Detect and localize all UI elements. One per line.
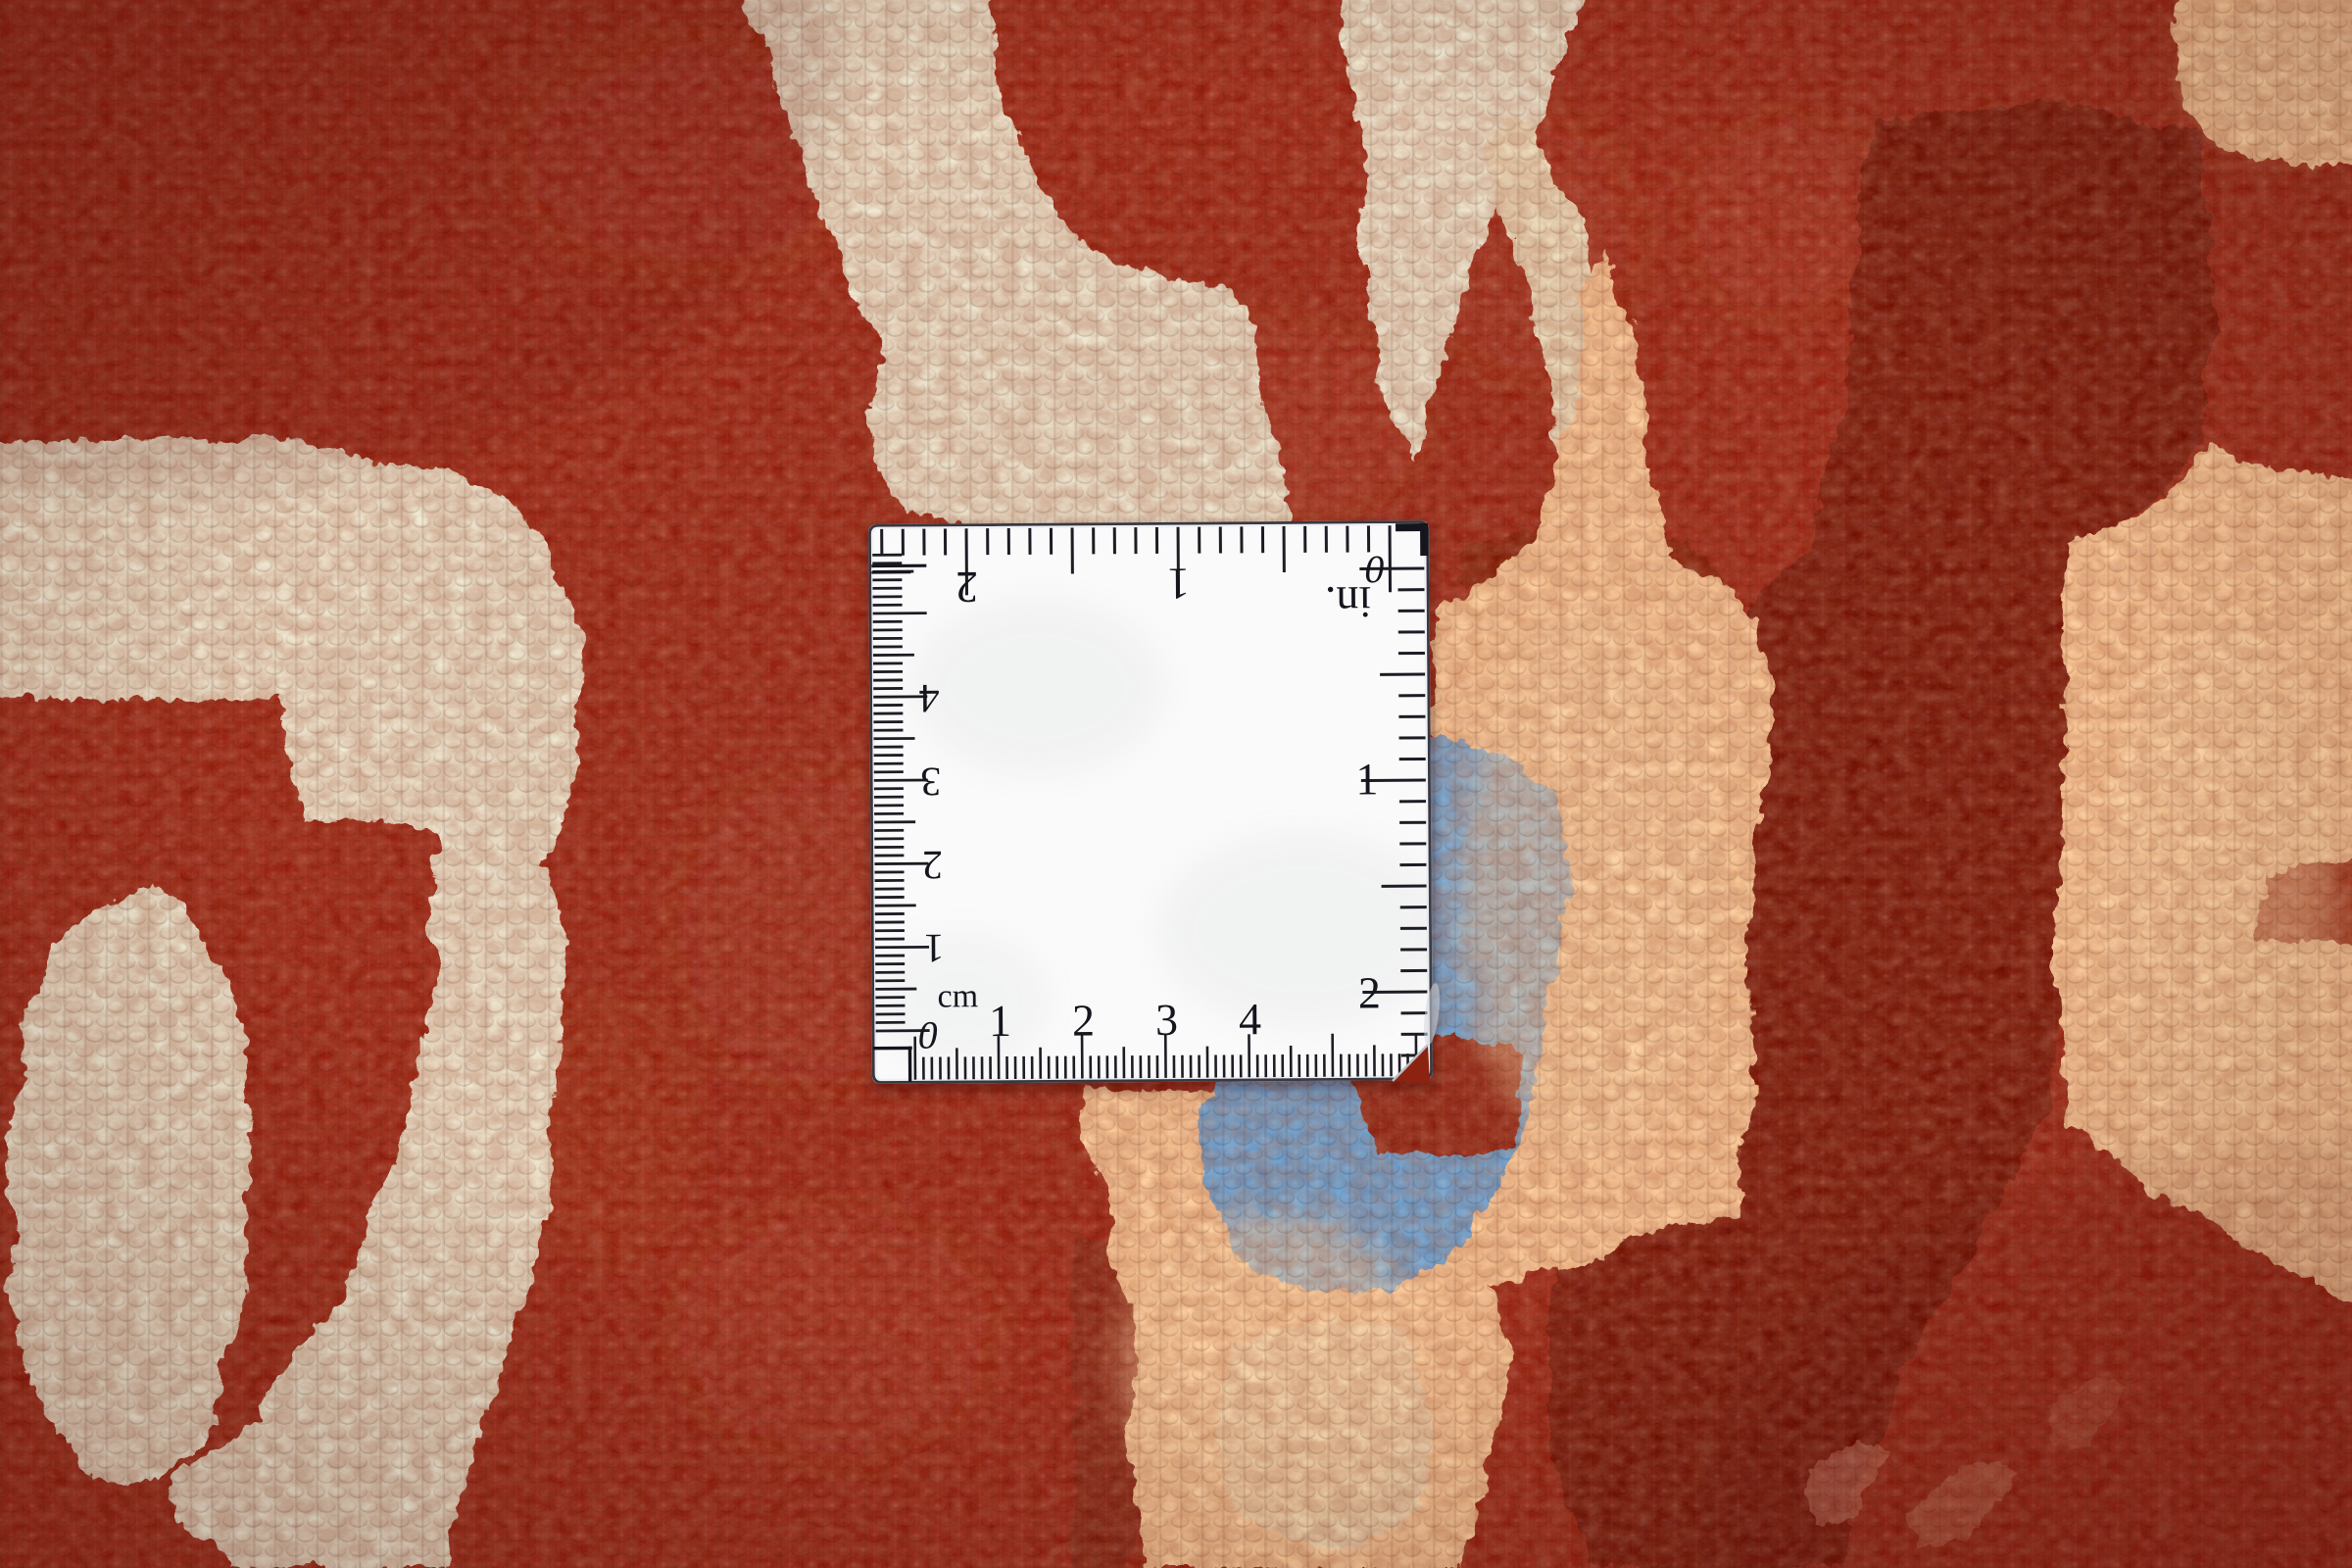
svg-text:4: 4 [919,675,940,720]
svg-text:1: 1 [923,925,944,970]
svg-text:0: 0 [917,1013,937,1057]
svg-text:4: 4 [1239,994,1261,1044]
svg-text:cm: cm [937,978,978,1014]
svg-text:3: 3 [920,759,941,804]
svg-text:2: 2 [1358,967,1381,1017]
svg-text:1: 1 [1167,559,1190,609]
svg-text:2: 2 [1072,995,1095,1045]
svg-text:2: 2 [955,563,978,612]
svg-text:1: 1 [1355,754,1378,804]
svg-text:1: 1 [989,996,1011,1046]
svg-text:in.: in. [1325,577,1372,627]
svg-text:2: 2 [922,842,943,887]
svg-text:3: 3 [1155,995,1178,1045]
